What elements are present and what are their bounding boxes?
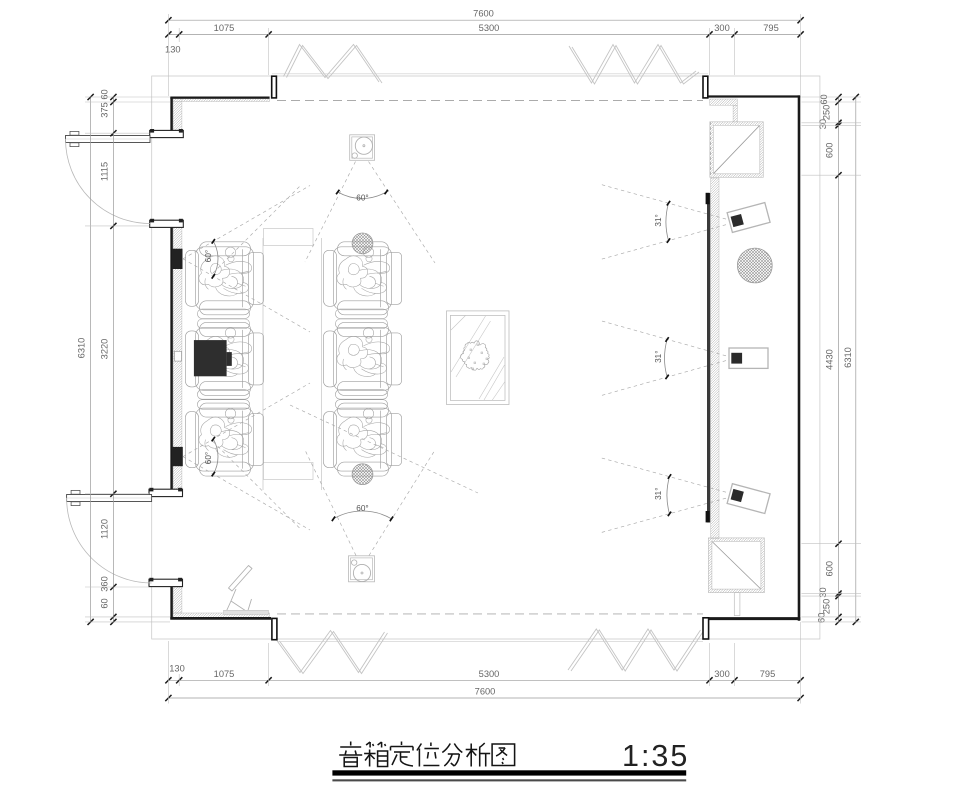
svg-text:250: 250 [822,599,832,615]
svg-text:1:35: 1:35 [622,739,689,773]
svg-text:600: 600 [825,143,835,159]
svg-text:600: 600 [825,561,835,577]
svg-text:1120: 1120 [100,519,110,539]
svg-text:4430: 4430 [825,349,835,370]
svg-text:5300: 5300 [479,23,500,33]
svg-text:130: 130 [169,664,185,674]
svg-text:5300: 5300 [479,669,500,679]
svg-text:6310: 6310 [77,338,87,359]
svg-text:250: 250 [822,105,832,121]
svg-text:1075: 1075 [214,669,235,679]
svg-text:795: 795 [763,23,779,33]
svg-text:6310: 6310 [843,347,853,368]
svg-text:360: 360 [100,576,110,592]
svg-text:31°: 31° [654,488,663,500]
svg-text:60°: 60° [204,250,213,262]
svg-text:30: 30 [818,119,828,129]
svg-text:375: 375 [100,102,110,118]
svg-text:1075: 1075 [214,23,235,33]
svg-text:3220: 3220 [100,339,110,360]
svg-text:60°: 60° [204,452,213,464]
svg-text:7600: 7600 [475,686,496,696]
svg-text:31°: 31° [654,214,663,226]
svg-text:795: 795 [760,669,776,679]
svg-text:60°: 60° [356,194,368,203]
svg-text:60: 60 [100,598,110,608]
svg-text:300: 300 [714,669,730,679]
svg-text:1115: 1115 [100,162,110,181]
svg-text:60: 60 [817,613,827,623]
svg-text:300: 300 [714,23,730,33]
svg-text:60: 60 [819,94,829,104]
svg-text:130: 130 [165,45,181,55]
svg-text:7600: 7600 [473,9,494,19]
svg-text:31°: 31° [654,351,663,363]
svg-text:60°: 60° [356,504,368,513]
svg-text:60: 60 [100,89,110,99]
